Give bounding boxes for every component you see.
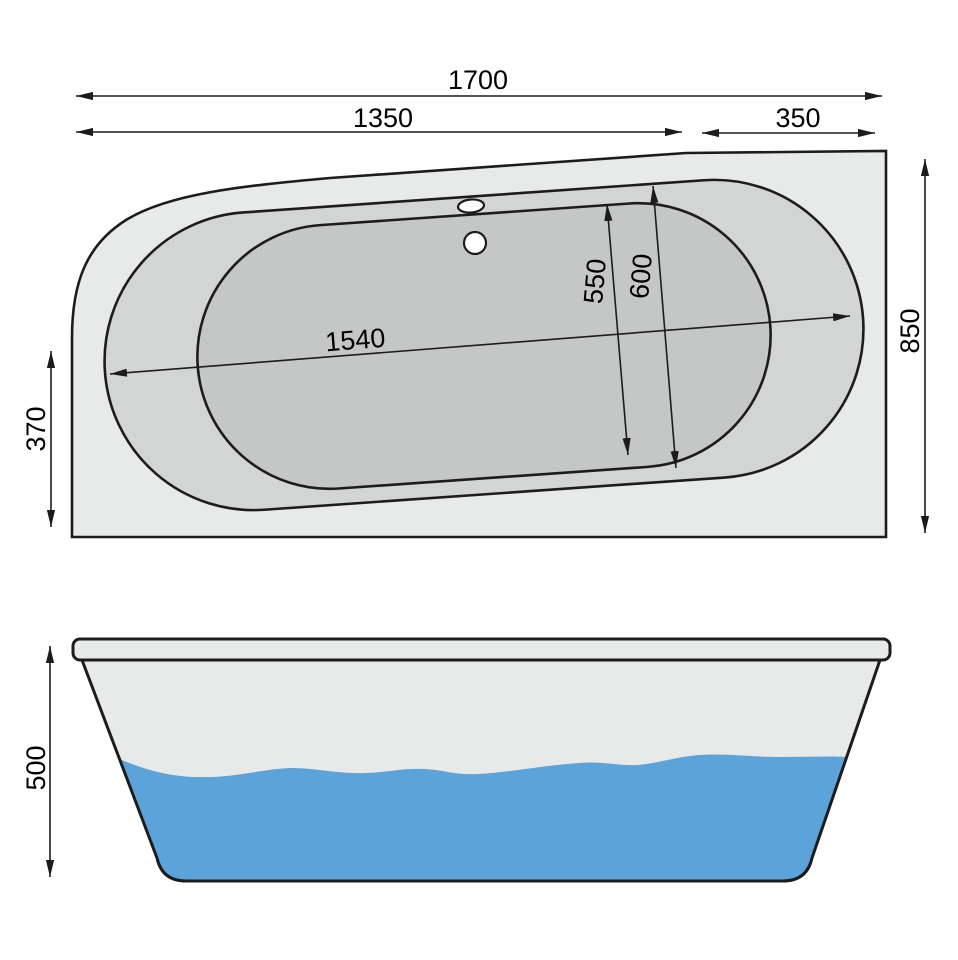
dim-front-section: 1350 [76, 103, 682, 133]
dim-total-length: 1700 [76, 65, 882, 96]
dim-overall-width: 850 [895, 159, 925, 533]
dim-total-length-label: 1700 [448, 65, 508, 95]
dim-basin-top-width-label: 600 [624, 252, 658, 300]
dim-basin-floor-width-label: 550 [578, 257, 612, 305]
dim-end-section-label: 350 [775, 103, 820, 133]
top-view: 1700 1350 350 850 370 [21, 65, 925, 537]
dim-front-section-label: 1350 [353, 103, 413, 133]
dim-height-label: 500 [21, 745, 51, 790]
dim-basin-length-label: 1540 [324, 323, 386, 358]
dim-end-section: 350 [702, 103, 875, 133]
dim-side-edge: 370 [21, 351, 51, 527]
dim-height: 500 [21, 646, 51, 877]
bathtub-dimension-diagram: 1700 1350 350 850 370 [0, 0, 958, 960]
dim-overall-width-label: 850 [895, 308, 925, 353]
faucet-hole [464, 232, 486, 254]
tub-rim [73, 639, 890, 660]
side-view: 500 [21, 639, 890, 881]
dim-side-edge-label: 370 [21, 406, 51, 451]
